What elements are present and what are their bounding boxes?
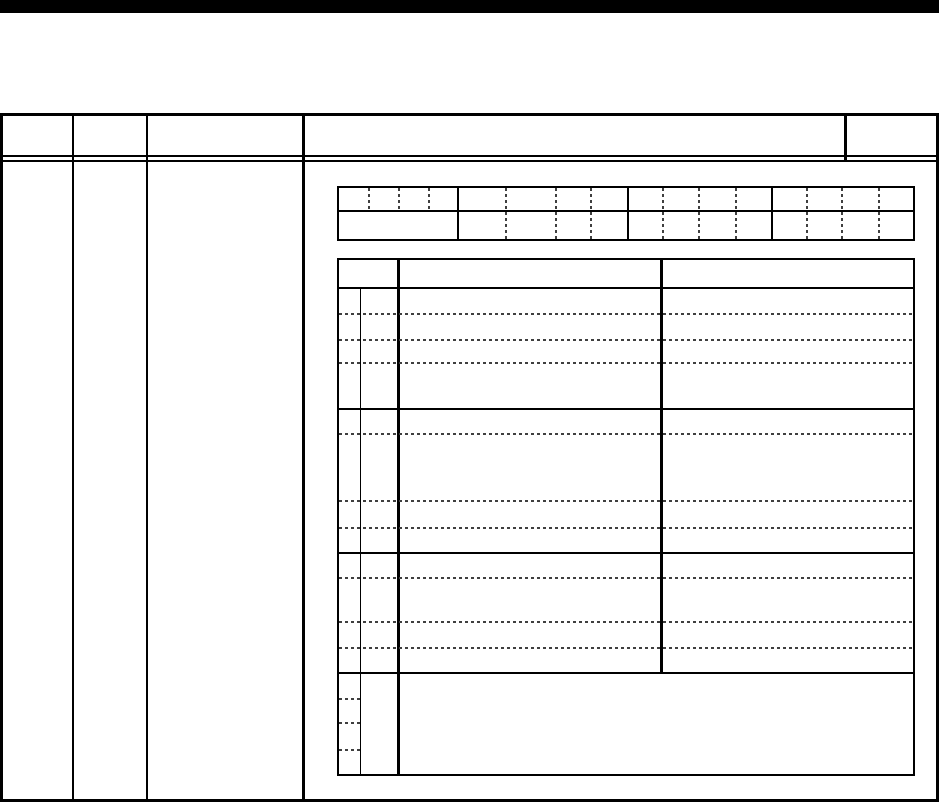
bit-grid-left-border — [337, 186, 339, 241]
bit-cell-divider — [505, 212, 507, 239]
bit-cell-divider — [505, 188, 507, 210]
bit-cell-divider — [555, 188, 557, 210]
bit-cell-divider — [662, 188, 664, 210]
row-group-divider-2 — [337, 552, 915, 554]
bit-cell-divider — [841, 188, 843, 210]
dotted-row-separator-short — [339, 698, 360, 700]
bit-cell-divider — [806, 188, 808, 210]
bit-cell-divider — [590, 212, 592, 239]
dotted-row-separator — [339, 500, 913, 502]
header-double-rule-upper — [0, 155, 939, 157]
column-divider-1 — [72, 113, 74, 799]
bit-cell-divider — [878, 188, 880, 210]
dotted-row-separator — [339, 433, 913, 435]
outer-table-bottom-border — [0, 799, 939, 802]
header-column-divider-4 — [844, 113, 847, 162]
dotted-row-separator — [339, 362, 913, 364]
top-black-bar — [0, 0, 939, 13]
detail-table-top-border — [337, 258, 915, 260]
bit-cell-divider — [735, 212, 737, 239]
detail-header-bottom-rule — [337, 287, 915, 289]
detail-left-column-divider — [397, 258, 400, 776]
bit-grid-group-divider-2 — [627, 186, 629, 241]
detail-table-bottom-border — [337, 774, 915, 776]
column-divider-2 — [146, 113, 148, 799]
bit-cell-divider — [878, 212, 880, 239]
bit-grid-top-border — [337, 186, 915, 188]
bit-cell-divider — [368, 188, 370, 210]
column-divider-3 — [302, 113, 305, 799]
bit-cell-divider — [806, 212, 808, 239]
dotted-row-separator — [339, 621, 913, 623]
row-group-divider-1 — [337, 408, 915, 410]
bit-cell-divider — [698, 212, 700, 239]
outer-table-top-border — [0, 113, 939, 116]
dotted-row-separator — [339, 577, 913, 579]
header-double-rule-lower — [0, 160, 939, 162]
bit-cell-divider — [555, 212, 557, 239]
outer-table-left-border — [0, 113, 3, 802]
bit-cell-divider — [698, 188, 700, 210]
bit-cell-divider — [428, 188, 430, 210]
bit-cell-divider — [662, 212, 664, 239]
bit-grid-row-divider — [337, 210, 915, 212]
bit-cell-divider — [590, 188, 592, 210]
row-group-divider-3 — [337, 672, 915, 674]
dotted-row-separator-short — [339, 722, 360, 724]
bit-grid-bottom-border — [337, 239, 915, 241]
bit-cell-divider — [735, 188, 737, 210]
bit-cell-divider — [398, 188, 400, 210]
bit-grid-group-divider-1 — [457, 186, 459, 241]
detail-middle-column-divider — [660, 258, 663, 674]
bit-grid-right-border — [913, 186, 915, 241]
document-page — [0, 0, 939, 804]
dotted-row-separator — [339, 313, 913, 315]
detail-sub-column-divider — [360, 287, 361, 776]
detail-table-right-border — [913, 258, 915, 776]
dotted-row-separator — [339, 647, 913, 649]
dotted-row-separator — [339, 527, 913, 529]
dotted-row-separator-short — [339, 749, 360, 751]
bit-grid-group-divider-3 — [771, 186, 773, 241]
bit-cell-divider — [841, 212, 843, 239]
dotted-row-separator — [339, 339, 913, 341]
